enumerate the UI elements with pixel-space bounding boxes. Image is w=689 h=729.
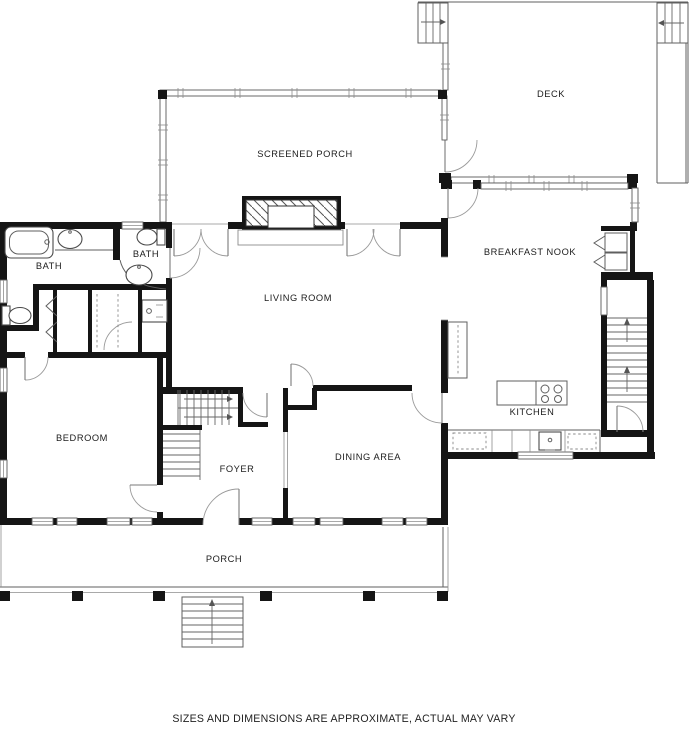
kitchen-fixtures xyxy=(448,322,600,452)
kitchen-island xyxy=(497,381,567,405)
room-label-breakfast-nook: BREAKFAST NOOK xyxy=(484,247,577,257)
deck-stairs-left-icon xyxy=(418,3,448,43)
kitchen-sink xyxy=(539,432,561,450)
bath-fixtures xyxy=(2,227,167,325)
deck-stairs-right-icon xyxy=(657,3,688,43)
floor-plan-page: DECK SCREENED PORCH BREAKFAST NOOK BATH … xyxy=(0,0,689,729)
hall-closets xyxy=(46,290,142,352)
refrigerator-counter xyxy=(448,322,467,378)
bathtub xyxy=(5,227,53,258)
front-porch-area xyxy=(0,525,448,647)
room-label-living-room: LIVING ROOM xyxy=(264,293,332,303)
room-label-bath-left: BATH xyxy=(36,261,62,271)
hall-vanity-sink xyxy=(142,300,167,322)
room-label-dining-area: DINING AREA xyxy=(335,452,401,462)
porch-steps-icon xyxy=(182,597,243,647)
fireplace-icon xyxy=(238,196,343,245)
room-label-kitchen: KITCHEN xyxy=(510,407,555,417)
disclaimer-text: SIZES AND DIMENSIONS ARE APPROXIMATE, AC… xyxy=(172,713,515,725)
room-label-porch: PORCH xyxy=(206,554,242,564)
east-staircase xyxy=(607,318,647,402)
pantry-closet xyxy=(594,233,627,270)
room-label-deck: DECK xyxy=(537,89,565,99)
bath-left-toilet xyxy=(2,306,31,325)
room-label-bedroom: BEDROOM xyxy=(56,433,108,443)
room-label-bath-right: BATH xyxy=(133,249,159,259)
room-label-foyer: FOYER xyxy=(220,464,255,474)
bath-left-sink xyxy=(55,230,113,251)
floor-plan-image: DECK SCREENED PORCH BREAKFAST NOOK BATH … xyxy=(0,0,689,729)
kitchen-counter xyxy=(448,430,600,452)
hearth xyxy=(238,230,343,245)
room-label-screened-porch: SCREENED PORCH xyxy=(257,149,353,159)
bath-right-toilet xyxy=(137,229,165,245)
